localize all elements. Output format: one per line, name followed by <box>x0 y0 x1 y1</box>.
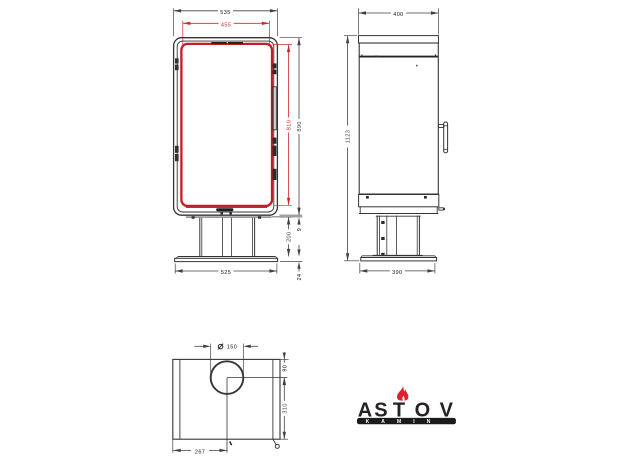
svg-text:9: 9 <box>297 228 303 231</box>
svg-text:24: 24 <box>297 274 303 281</box>
svg-text:535: 535 <box>220 10 230 16</box>
svg-text:455: 455 <box>221 23 231 29</box>
svg-text:525: 525 <box>221 270 231 276</box>
svg-text:890: 890 <box>297 121 303 132</box>
svg-text:KAMIN: KAMIN <box>366 419 443 425</box>
svg-text:150: 150 <box>227 344 237 350</box>
svg-text:267: 267 <box>195 450 205 456</box>
svg-text:390: 390 <box>392 270 402 276</box>
svg-text:90: 90 <box>282 365 288 372</box>
svg-text:1123: 1123 <box>346 130 352 144</box>
svg-text:200: 200 <box>287 231 293 242</box>
svg-text:400: 400 <box>393 12 403 18</box>
svg-text:310: 310 <box>282 403 288 414</box>
svg-text:810: 810 <box>287 120 293 131</box>
